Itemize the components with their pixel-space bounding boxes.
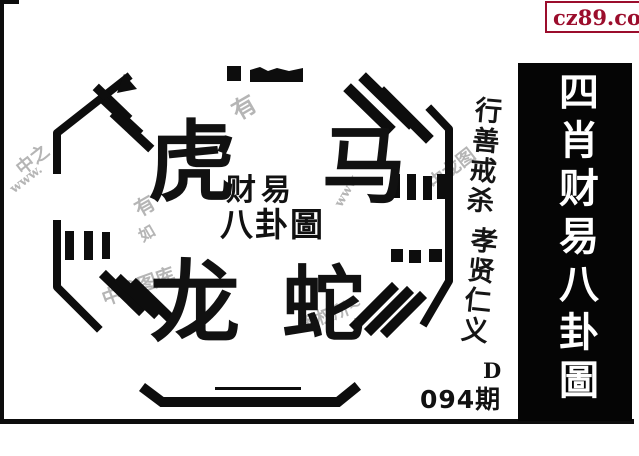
trigram-right-lower [391, 249, 442, 263]
zodiac-snake: 蛇 [282, 264, 364, 346]
zodiac-tiger: 虎 [148, 118, 236, 206]
center-title-line1: 财易 [226, 176, 296, 206]
zodiac-horse: 马 [322, 124, 406, 208]
trigram-top-left [99, 90, 148, 146]
trigram-left [65, 231, 110, 260]
trigram-bottom-right [356, 289, 420, 331]
bagua-chart-page: cz89.com 中之 www. 有 有 如 www 中龙图 中龙图库 板权所~ [0, 0, 639, 456]
frame-right-corner [425, 110, 449, 322]
trigram-top [227, 66, 303, 82]
center-title-line2: 八卦圖 [220, 208, 325, 241]
frame-top-left-corner [57, 78, 127, 170]
zodiac-dragon: 龙 [150, 258, 240, 348]
trigram-bottom [146, 387, 354, 402]
issue-number: 094期 [420, 380, 501, 416]
